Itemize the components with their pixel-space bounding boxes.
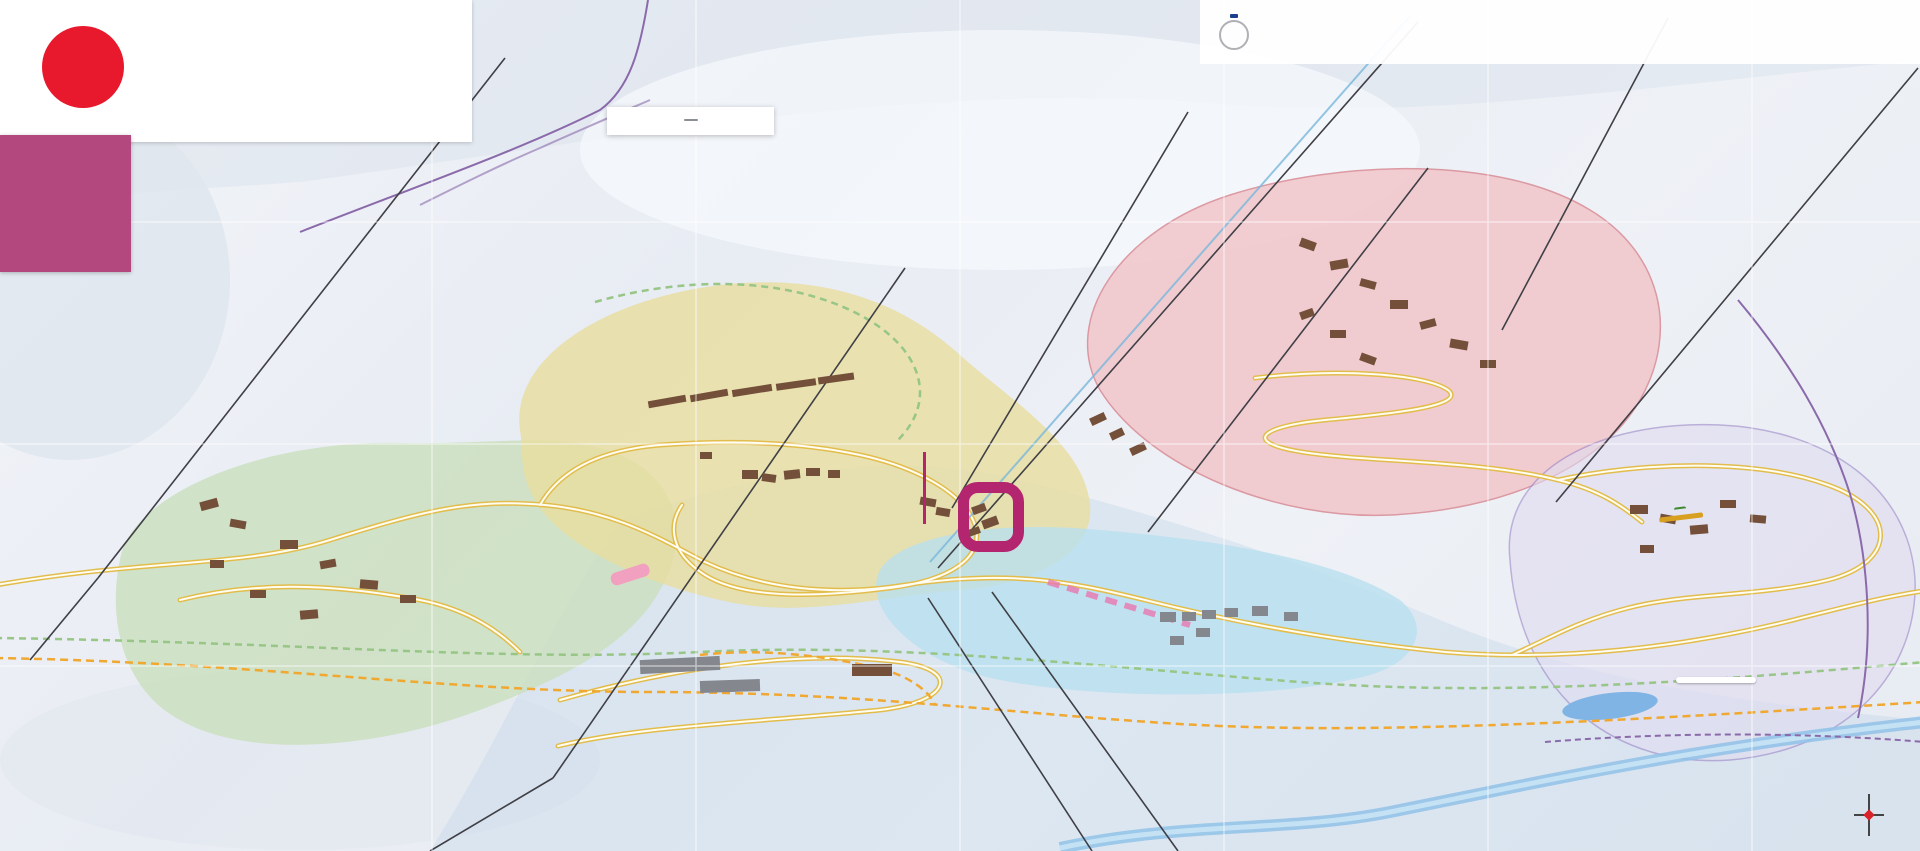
tourism-info-bar bbox=[1200, 0, 1920, 64]
agency-pointer-line bbox=[923, 452, 926, 524]
compass-rose bbox=[1848, 790, 1890, 842]
menuires-logo-icon bbox=[42, 26, 124, 108]
famille-plus-logo bbox=[1588, 29, 1672, 35]
agency-highlight-box bbox=[958, 482, 1024, 552]
quality-commitment-badge bbox=[1230, 14, 1238, 18]
alpes-agency-logo bbox=[0, 135, 131, 272]
qualite-tourisme-icon bbox=[1219, 20, 1249, 50]
plan-de-leau-badge bbox=[1676, 677, 1756, 683]
croisette-legend-panel bbox=[607, 107, 774, 135]
grid-reference-badge bbox=[684, 119, 698, 121]
resort-map bbox=[0, 0, 1920, 851]
qualite-tourisme-logo bbox=[1206, 14, 1262, 51]
brand-header bbox=[0, 0, 472, 142]
